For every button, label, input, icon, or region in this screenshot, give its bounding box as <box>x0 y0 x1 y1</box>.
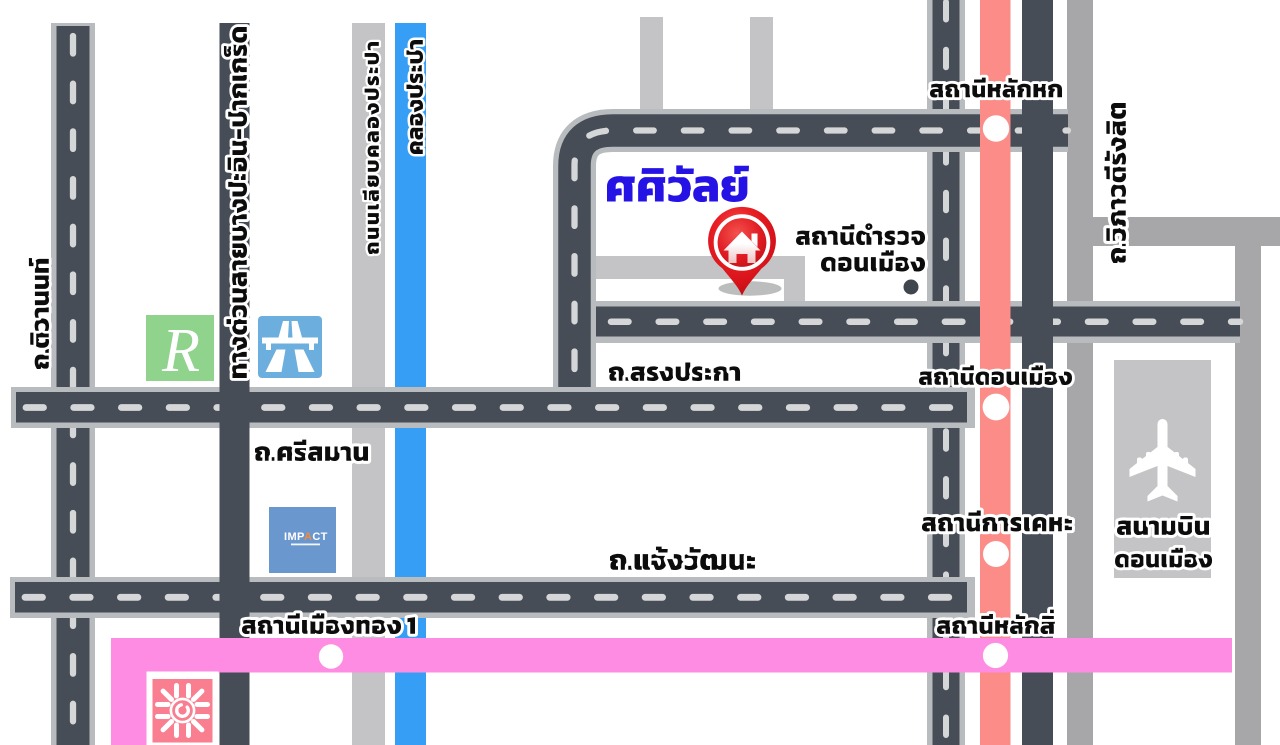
svg-text:IMPACT: IMPACT <box>284 531 328 543</box>
svg-text:R: R <box>161 317 200 385</box>
